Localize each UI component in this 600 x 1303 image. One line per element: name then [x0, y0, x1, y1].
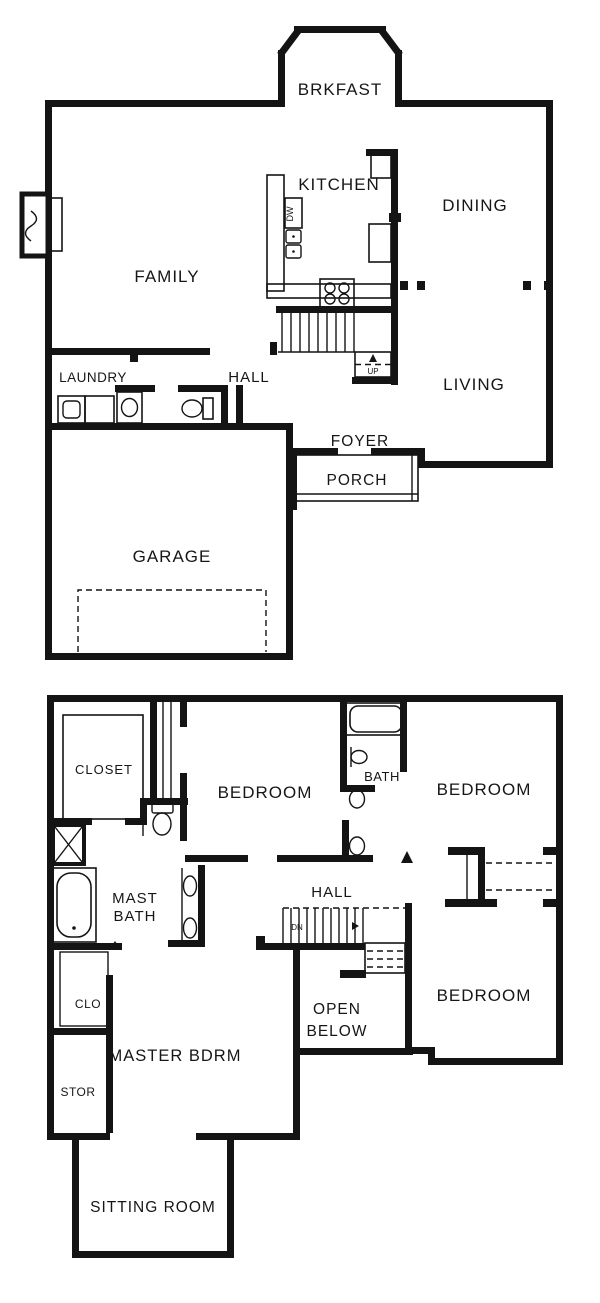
toilet-icon-bath-2: [350, 837, 365, 855]
dryer-icon: [85, 396, 114, 423]
floor-plan-page: DW UP: [0, 0, 600, 1303]
floor-plan-drawing: DW UP: [0, 0, 600, 1303]
room-label-foyer: FOYER: [331, 433, 389, 450]
floor1-plan: DW UP: [22, 26, 553, 660]
room-label-family: FAMILY: [134, 267, 199, 286]
stairs-up-label: UP: [367, 367, 378, 376]
room-label-hall-1: HALL: [228, 369, 270, 386]
room-label-bedroom-top: BEDROOM: [218, 783, 313, 802]
stairs-up-icon: UP: [278, 313, 391, 377]
room-label-living: LIVING: [443, 375, 505, 394]
room-label-bath: BATH: [364, 769, 400, 784]
room-label-laundry: LAUNDRY: [59, 370, 127, 385]
room-label-kitchen: KITCHEN: [298, 175, 380, 194]
room-label-bedroom-bottom: BEDROOM: [437, 986, 532, 1005]
fireplace-icon: [22, 194, 62, 256]
room-label-porch: PORCH: [327, 472, 388, 489]
room-label-dining: DINING: [442, 196, 508, 215]
room-label-bedroom-right: BEDROOM: [437, 780, 532, 799]
vanity-sinks-icon: [182, 868, 197, 940]
laundry-tub-icon: [117, 392, 142, 423]
room-label-hall-2: HALL: [311, 884, 353, 901]
room-label-clo: CLO: [75, 997, 101, 1011]
garage-door-icon: [78, 590, 266, 652]
bathtub-icon: [346, 703, 406, 735]
room-label-garage: GARAGE: [133, 547, 212, 566]
room-label-closet: CLOSET: [75, 762, 133, 777]
room-label-sitting-room: SITTING ROOM: [90, 1199, 216, 1216]
room-label-brkfast: BRKFAST: [298, 80, 382, 99]
room-label-master-bdrm: MASTER BDRM: [109, 1047, 242, 1065]
toilet-icon-bath-1: [350, 790, 365, 808]
floor2-plan: DN CLOSET BEDROOM BATH BEDROOM MAST BATH…: [47, 695, 563, 1258]
room-label-stor: STOR: [60, 1085, 95, 1099]
column-markers: [400, 281, 552, 290]
bathtub-icon-master: [52, 868, 96, 942]
toilet-icon-master: [143, 802, 173, 836]
shower-icon: [53, 825, 84, 864]
stairs-down-icon: DN: [283, 908, 405, 973]
stairs-down-label: DN: [291, 923, 303, 932]
clo-shelving: [60, 952, 108, 1026]
toilet-icon: [182, 398, 213, 419]
dishwasher-icon: DW: [285, 198, 302, 228]
dishwasher-label: DW: [285, 206, 295, 221]
room-label-open-below-2: BELOW: [307, 1023, 368, 1040]
room-label-mast-bath-1: MAST: [112, 890, 158, 907]
kitchen-sink-icon: [286, 230, 301, 258]
room-label-open-below-1: OPEN: [313, 1001, 361, 1018]
room-label-mast-bath-2: BATH: [114, 908, 157, 925]
washer-icon: [58, 396, 85, 423]
floor1-walls: [45, 26, 553, 660]
sink-icon-bath: [351, 747, 367, 767]
